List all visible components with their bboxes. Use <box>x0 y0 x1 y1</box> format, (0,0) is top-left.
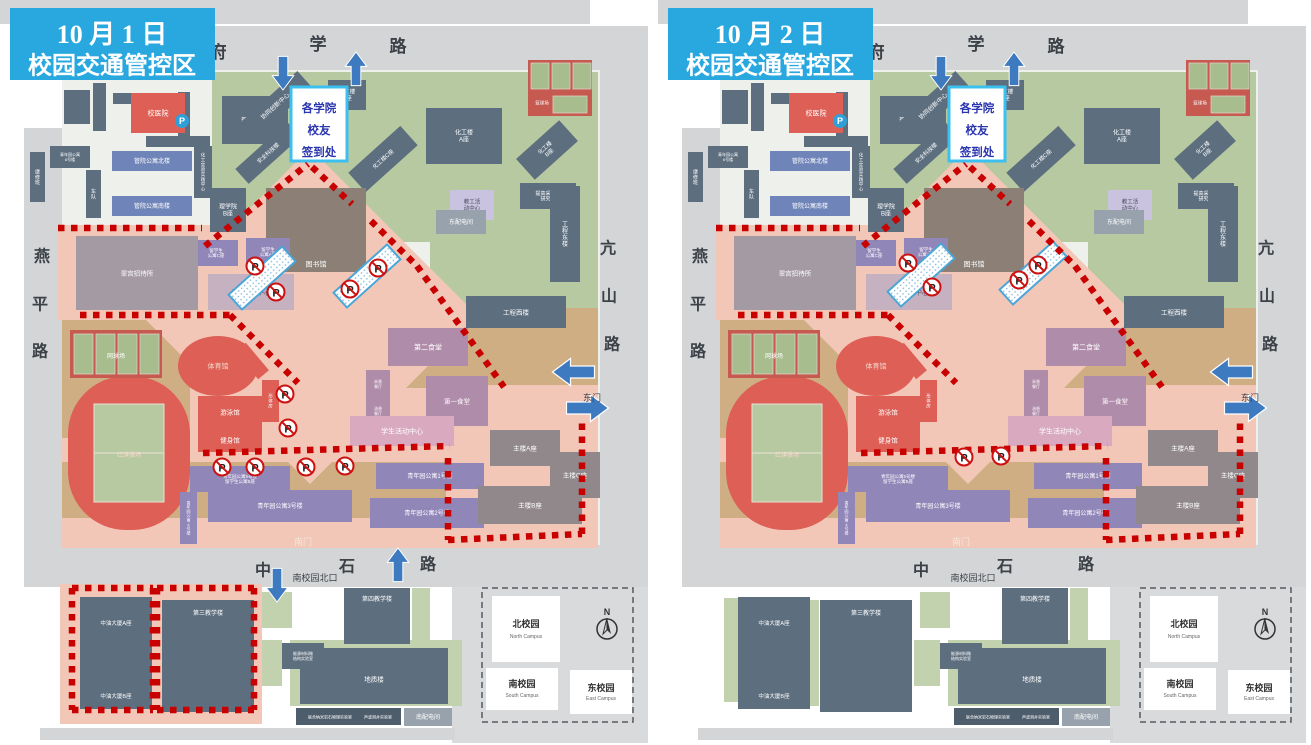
building-化工楼A座: 化工楼A座 <box>426 108 502 164</box>
campus-map-oct1: 红旗操场网球场篮球场体育馆校医院理学院A座管院公寓北楼管院公寓南楼青年园公寓6号… <box>0 0 653 745</box>
building-主楼B座: 主楼B座 <box>478 486 582 524</box>
tennis-label: 网球场 <box>107 352 125 360</box>
map-label: 主楼A座 <box>1171 443 1195 452</box>
building-化工楼A座: 化工楼A座 <box>1084 108 1160 164</box>
gym-label: 体育馆 <box>208 361 229 370</box>
inset-north-en: North Campus <box>510 634 543 640</box>
signin-line: 各学院 <box>301 101 337 115</box>
road-label: 声波测井实验室 <box>1022 713 1050 719</box>
map-label: 管院公寓南楼 <box>792 202 828 210</box>
building-游泳馆: 游泳馆 <box>198 396 262 428</box>
building-管院公寓南楼: 管院公寓南楼 <box>770 196 850 216</box>
building-block <box>146 136 210 147</box>
building-继修班: 继修班 <box>688 152 703 202</box>
map-label: 游泳馆 <box>220 407 240 416</box>
building-留学生公寓C座: 留学生公寓C座 <box>194 240 238 266</box>
no-parking-icon: P <box>370 260 387 277</box>
map-label: 东配电间 <box>449 218 473 226</box>
inset-south-en: South Campus <box>505 693 539 699</box>
map-label: 校医院 <box>148 108 169 117</box>
map-label: 青年园公寓4号楼 <box>845 499 849 535</box>
building-block <box>722 90 748 124</box>
building-青年园公寓5号楼留学生公寓B座: 青年园公寓5号楼留学生公寓B座 <box>190 466 290 492</box>
map-label: 化工实验实践中心 <box>859 152 864 192</box>
building-主楼A座: 主楼A座 <box>1148 430 1218 466</box>
building-能源材料微结构实验室: 能源材料微结构实验室 <box>282 643 324 669</box>
basketball-label: 篮球场 <box>535 100 549 107</box>
building-管院公寓北楼: 管院公寓北楼 <box>112 151 192 171</box>
no-parking-icon: P <box>993 448 1010 465</box>
map-label: 能源材料微结构实验室 <box>293 650 313 661</box>
map-label: 健身馆 <box>220 435 240 444</box>
no-parking-icon: P <box>277 386 294 403</box>
map-label: 第四教学楼 <box>362 595 392 603</box>
map-label: 翠宫招待所 <box>121 268 154 277</box>
map-label: 中油大厦A座 <box>100 619 132 627</box>
road-label: 南校园北口 <box>950 572 995 583</box>
map-label: 车队 <box>91 188 96 200</box>
map-label: 翠宫招待所 <box>779 268 812 277</box>
map-label: 形体房 <box>926 393 931 410</box>
signin-line: 校友 <box>966 123 989 137</box>
map-label: 工程西楼 <box>503 307 530 316</box>
map-label: 第二食堂 <box>414 342 442 351</box>
no-parking-icon: P <box>280 420 297 437</box>
inset-south-en: South Campus <box>1163 693 1197 699</box>
building-中油大厦B座: 中油大厦B座 <box>738 649 810 709</box>
building-车队: 车队 <box>86 170 101 218</box>
no-parking-icon: P <box>337 458 354 475</box>
map-label: 工程东楼 <box>562 221 568 247</box>
building-化工实验实践中心: 化工实验实践中心 <box>194 146 212 198</box>
basketball-label: 篮球场 <box>1193 100 1207 107</box>
inset-north-en: North Campus <box>1168 634 1201 640</box>
title-date: 10 月 2 日 <box>715 20 826 49</box>
road-label: 路 <box>420 555 437 574</box>
map-label: 教工活动中心 <box>1122 198 1139 212</box>
road-label: 南校园北口 <box>292 572 337 583</box>
signin-callout: 各学院校友签到处 <box>949 87 1005 161</box>
map-label: 游泳馆 <box>878 407 898 416</box>
map-label: 留学生公寓C座 <box>208 247 225 259</box>
road-label: 南门 <box>952 536 970 547</box>
road-label: 中 <box>913 561 929 580</box>
signin-callout: 各学院校友签到处 <box>291 87 347 161</box>
no-parking-icon: P <box>268 284 285 301</box>
map-label: 第四教学楼 <box>1020 595 1050 603</box>
building-管院公寓北楼: 管院公寓北楼 <box>770 151 850 171</box>
building-校医院: 校医院 <box>131 93 185 133</box>
map-label: 学生活动中心 <box>1039 426 1081 435</box>
parking-icon-letter: P <box>837 116 843 126</box>
building-学生活动中心: 学生活动中心 <box>1008 416 1112 446</box>
building-翠宫招待所: 翠宫招待所 <box>76 236 198 310</box>
building-第三教学楼: 第三教学楼 <box>162 600 254 712</box>
title-caption: 校园交通管控区 <box>28 51 196 79</box>
map-label: 南配电间 <box>1074 713 1098 721</box>
map-label: 校医院 <box>806 108 827 117</box>
road-label: 山 <box>601 288 617 306</box>
map-label: 南配电间 <box>416 713 440 721</box>
building-主楼A座: 主楼A座 <box>490 430 560 466</box>
no-parking-icon: P <box>900 255 917 272</box>
road-label: 亢 <box>1258 239 1274 258</box>
no-parking-icon: P <box>1030 257 1047 274</box>
building-工程东楼: 工程东楼 <box>550 186 580 282</box>
map-panel-oct2: 红旗操场网球场篮球场体育馆校医院理学院A座管院公寓北楼管院公寓南楼青年园公寓6号… <box>658 0 1311 745</box>
map-label: 青年园公寓2号楼 <box>1062 509 1107 517</box>
building-管院公寓南楼: 管院公寓南楼 <box>112 196 192 216</box>
building-东配电间: 东配电间 <box>1094 210 1144 234</box>
building-校医院: 校医院 <box>789 93 843 133</box>
road-label: 中 <box>255 561 271 580</box>
map-label: 第三教学楼 <box>193 609 223 617</box>
parking-icon: P <box>175 114 189 128</box>
building-青年园公寓6号楼: 青年园公寓6号楼 <box>50 146 90 168</box>
building-青年园公寓6号楼: 青年园公寓6号楼 <box>708 146 748 168</box>
road-label: 燕 <box>34 248 50 266</box>
map-label: 中油大厦B座 <box>100 692 132 700</box>
campus-map-oct2: 红旗操场网球场篮球场体育馆校医院理学院A座管院公寓北楼管院公寓南楼青年园公寓6号… <box>658 0 1311 745</box>
map-label: 青年园公寓4号楼 <box>187 499 191 535</box>
building-中油大厦A座: 中油大厦A座 <box>738 597 810 649</box>
stadium-label: 红旗操场 <box>117 451 141 459</box>
map-label: 工程东楼 <box>1220 221 1226 247</box>
building-留学生公寓C座: 留学生公寓C座 <box>852 240 896 266</box>
road-label: 石 <box>338 559 355 576</box>
map-label: 主楼B座 <box>518 500 542 509</box>
road-label: 学 <box>968 34 985 54</box>
road-label: 学 <box>310 34 327 54</box>
road-bottom-strip <box>40 728 455 740</box>
building-block <box>804 136 868 147</box>
building-青年园公寓2号楼: 青年园公寓2号楼 <box>1028 498 1142 528</box>
map-label: 工程西楼 <box>1161 307 1188 316</box>
building-青年园公寓1号楼: 青年园公寓1号楼 <box>1034 463 1142 489</box>
map-label: 能源材料微结构实验室 <box>951 650 971 661</box>
no-parking-icon: P <box>342 281 359 298</box>
road-label: 路 <box>32 342 49 361</box>
title-caption: 校园交通管控区 <box>686 51 854 79</box>
road-label: 路 <box>1078 555 1095 574</box>
building-block <box>751 83 764 131</box>
no-parking-icon: P <box>247 258 264 275</box>
no-parking-icon: P <box>924 279 941 296</box>
building-健身馆: 健身馆 <box>856 428 920 452</box>
building-第二食堂: 第二食堂 <box>388 328 468 366</box>
panel-title: 10 月 1 日校园交通管控区 <box>10 8 215 80</box>
road-label: 燕 <box>692 248 708 266</box>
map-label: 地质楼 <box>364 674 384 683</box>
map-label: 中油大厦A座 <box>758 619 790 627</box>
building-block <box>93 83 106 131</box>
signin-line: 校友 <box>308 123 331 137</box>
inset-north-label: 北校园 <box>1170 618 1197 629</box>
campus-traffic-control-maps: 红旗操场网球场篮球场体育馆校医院理学院A座管院公寓北楼管院公寓南楼青年园公寓6号… <box>0 0 1311 745</box>
map-label: 车队 <box>749 188 754 200</box>
parking-icon-letter: P <box>179 116 185 126</box>
building-米香餐厅: 米香餐厅 <box>366 370 390 398</box>
building-化工实验实践中心: 化工实验实践中心 <box>852 146 870 198</box>
map-label: 继修班 <box>693 168 698 186</box>
map-label: 留学生公寓C座 <box>866 247 883 259</box>
signin-line: 各学院 <box>959 101 995 115</box>
title-date: 10 月 1 日 <box>57 20 168 49</box>
building-第三教学楼: 第三教学楼 <box>820 600 912 712</box>
building-第四教学楼: 第四教学楼 <box>344 588 410 644</box>
building-中油大厦A座: 中油大厦A座 <box>80 597 152 649</box>
road-label: 联合纳米岩石物理实验室 <box>308 713 352 719</box>
building-游泳馆: 游泳馆 <box>856 396 920 428</box>
building-南配电间: 南配电间 <box>1062 708 1110 726</box>
map-label: 青年园公寓2号楼 <box>404 509 449 517</box>
building-南配电间: 南配电间 <box>404 708 452 726</box>
building-青年园公寓4号楼: 青年园公寓4号楼 <box>180 492 197 544</box>
map-label: 管院公寓北楼 <box>792 157 828 165</box>
map-label: 形体房 <box>268 393 273 410</box>
building-青年园公寓3号楼: 青年园公寓3号楼 <box>866 490 1010 522</box>
map-label: 健身馆 <box>878 435 898 444</box>
compass-n: N <box>1262 607 1269 617</box>
building-车队: 车队 <box>744 170 759 218</box>
no-parking-icon: P <box>214 459 231 476</box>
building-工程西楼: 工程西楼 <box>1124 296 1224 328</box>
road-label: 联合纳米岩石物理实验室 <box>966 713 1010 719</box>
building-工程东楼: 工程东楼 <box>1208 186 1238 282</box>
map-label: 东配电间 <box>1107 218 1131 226</box>
road-bottom-strip <box>698 728 1113 740</box>
map-label: 第二食堂 <box>1072 342 1100 351</box>
building-第四教学楼: 第四教学楼 <box>1002 588 1068 644</box>
building-米香餐厅: 米香餐厅 <box>1024 370 1048 398</box>
map-label: 管院公寓南楼 <box>134 202 170 210</box>
map-label: 主楼B座 <box>1176 500 1200 509</box>
road-label: 声波测井实验室 <box>364 713 392 719</box>
signin-line: 签到处 <box>301 145 337 159</box>
building-主楼B座: 主楼B座 <box>1136 486 1240 524</box>
road-label: 东门 <box>1241 392 1259 403</box>
tennis-label: 网球场 <box>765 352 783 360</box>
building-第二食堂: 第二食堂 <box>1046 328 1126 366</box>
road-label: 路 <box>390 36 408 56</box>
road-label: 亢 <box>600 239 616 258</box>
building-青年园公寓5号楼留学生公寓B座: 青年园公寓5号楼留学生公寓B座 <box>848 466 948 492</box>
map-label: 图书馆 <box>964 259 985 268</box>
building-block <box>64 90 90 124</box>
map-label: 青年园公寓3号楼 <box>257 502 302 510</box>
building-健身馆: 健身馆 <box>198 428 262 452</box>
inset-south-label: 南校园 <box>508 678 535 689</box>
signin-line: 签到处 <box>959 145 995 159</box>
map-label: 管院公寓北楼 <box>134 157 170 165</box>
map-label: 教工活动中心 <box>464 198 481 212</box>
building-青年园公寓4号楼: 青年园公寓4号楼 <box>838 492 855 544</box>
compass-n: N <box>604 607 611 617</box>
no-parking-icon: P <box>1011 272 1028 289</box>
map-label: 第一食堂 <box>444 396 471 405</box>
map-label: 第三教学楼 <box>851 609 881 617</box>
building-工程西楼: 工程西楼 <box>466 296 566 328</box>
no-parking-icon: P <box>247 459 264 476</box>
no-parking-icon: P <box>956 449 973 466</box>
road-label: 南门 <box>294 536 312 547</box>
map-label: 油香餐厅 <box>374 405 382 416</box>
road-label: 路 <box>1048 36 1066 56</box>
map-panel-oct1: 红旗操场网球场篮球场体育馆校医院理学院A座管院公寓北楼管院公寓南楼青年园公寓6号… <box>0 0 653 745</box>
map-label: 米香餐厅 <box>1032 378 1040 389</box>
road-label: 石 <box>996 559 1013 576</box>
map-label: 继修班 <box>35 168 40 186</box>
parking-icon: P <box>833 114 847 128</box>
building-翠宫招待所: 翠宫招待所 <box>734 236 856 310</box>
road-label: 路 <box>690 342 707 361</box>
map-label: 图书馆 <box>306 259 327 268</box>
inset-south-label: 南校园 <box>1166 678 1193 689</box>
map-label: 青年园公寓5号楼留学生公寓B座 <box>881 473 916 485</box>
road-label: 山 <box>1259 288 1275 306</box>
panel-title: 10 月 2 日校园交通管控区 <box>668 8 873 80</box>
building-青年园公寓3号楼: 青年园公寓3号楼 <box>208 490 352 522</box>
gym-label: 体育馆 <box>866 361 887 370</box>
inset-east-en: East Campus <box>1244 696 1275 702</box>
map-label: 青年园公寓3号楼 <box>915 502 960 510</box>
road-label: 平 <box>32 296 48 314</box>
stadium-label: 红旗操场 <box>775 451 799 459</box>
road-label: 东门 <box>583 392 601 403</box>
building-继修班: 继修班 <box>30 152 45 202</box>
building-学生活动中心: 学生活动中心 <box>350 416 454 446</box>
road-label: 路 <box>1262 335 1279 354</box>
map-label: 中油大厦B座 <box>758 692 790 700</box>
inset-north-label: 北校园 <box>512 618 539 629</box>
inset-east-label: 东校园 <box>587 682 614 693</box>
map-label: 油香餐厅 <box>1032 405 1040 416</box>
building-青年园公寓2号楼: 青年园公寓2号楼 <box>370 498 484 528</box>
building-青年园公寓1号楼: 青年园公寓1号楼 <box>376 463 484 489</box>
inset-east-label: 东校园 <box>1245 682 1272 693</box>
map-label: 地质楼 <box>1022 674 1042 683</box>
inset-east-en: East Campus <box>586 696 617 702</box>
no-parking-icon: P <box>298 459 315 476</box>
building-东配电间: 东配电间 <box>436 210 486 234</box>
map-label: 学生活动中心 <box>381 426 423 435</box>
map-label: 化工实验实践中心 <box>201 152 206 192</box>
building-形体房: 形体房 <box>920 380 937 422</box>
road-label: 平 <box>690 296 706 314</box>
map-label: 米香餐厅 <box>374 378 382 389</box>
map-label: 主楼A座 <box>513 443 537 452</box>
building-形体房: 形体房 <box>262 380 279 422</box>
building-中油大厦B座: 中油大厦B座 <box>80 649 152 709</box>
building-能源材料微结构实验室: 能源材料微结构实验室 <box>940 643 982 669</box>
road-label: 路 <box>604 335 621 354</box>
map-label: 第一食堂 <box>1102 396 1129 405</box>
